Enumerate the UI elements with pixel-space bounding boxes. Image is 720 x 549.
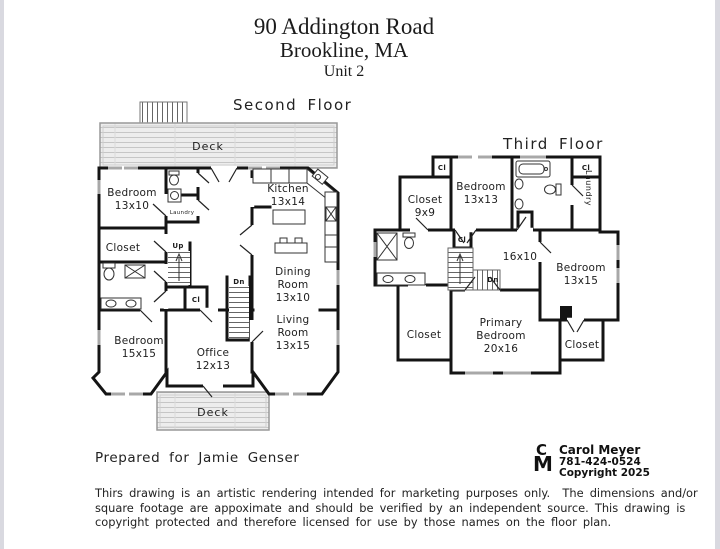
disclaimer-line1: Thirs drawing is an artistic rendering i…	[95, 486, 655, 501]
dining-dims: 13x10	[276, 292, 310, 304]
kitchen-dims: 13x14	[271, 196, 305, 208]
tf-doors	[416, 185, 584, 332]
page-edge-left	[0, 0, 4, 549]
logo-text-block: Carol Meyer 781-424-0524 Copyright 2025	[559, 445, 650, 480]
title-block: 90 Addington Road Brookline, MA Unit 2	[0, 14, 688, 81]
address-line: 90 Addington Road	[0, 14, 688, 39]
cl-hall-label: Cl	[458, 236, 466, 244]
tf-dn-label: Dn	[487, 276, 498, 284]
primary-line2: Bedroom	[476, 330, 526, 342]
primary-line1: Primary	[480, 317, 523, 329]
dining-line2: Room	[277, 279, 308, 291]
closet-left-label: Closet	[407, 329, 442, 341]
disclaimer-text: Thirs drawing is an artistic rendering i…	[95, 486, 655, 530]
bedroom13-dims: 13x13	[464, 194, 498, 206]
dn-label: Dn	[233, 278, 244, 286]
disclaimer-line2: square footage are appoximate and should…	[95, 501, 655, 516]
cl-top-left-label: Cl	[438, 164, 446, 172]
bedroom15-dims: 13x15	[564, 275, 598, 287]
city-line: Brookline, MA	[0, 39, 688, 62]
bedroom1-dims: 13x10	[115, 200, 149, 212]
deck-bottom-label: Deck	[197, 406, 229, 419]
bedroom2-name: Bedroom	[114, 335, 164, 347]
living-dims: 13x15	[276, 340, 310, 352]
office-name: Office	[197, 347, 230, 359]
hall-dims: 16x10	[503, 251, 537, 263]
office-dims: 12x13	[196, 360, 230, 372]
kitchen-name: Kitchen	[267, 183, 309, 195]
prepared-for-text: Prepared for Jamie Genser	[95, 450, 300, 466]
floor-plan-document: { "header": { "line1": "90 Addington Roa…	[0, 0, 720, 549]
bedroom13-name: Bedroom	[456, 181, 506, 193]
dining-line1: Dining	[275, 266, 311, 278]
primary-dims: 20x16	[484, 343, 518, 355]
living-line1: Living	[276, 314, 309, 326]
closet-right-label: Closet	[565, 339, 600, 351]
third-floor-plan: Cl Cl Cl Laundry Closet 9x9 Bedroom 13x1…	[370, 130, 640, 385]
laundry-label: Laundry	[170, 210, 195, 216]
page-edge-right	[715, 0, 720, 549]
laundry-vertical-label: Laundry	[584, 170, 593, 206]
cm-monogram: C M	[533, 443, 557, 474]
tf-room-labels: Cl Cl Cl Laundry Closet 9x9 Bedroom 13x1…	[407, 164, 606, 355]
disclaimer-line3: copyright protected and therefore licens…	[95, 515, 655, 530]
bedroom15-name: Bedroom	[556, 262, 606, 274]
closet9-dims: 9x9	[415, 207, 435, 219]
bedroom1-name: Bedroom	[107, 187, 157, 199]
bedroom2-dims: 15x15	[122, 348, 156, 360]
monogram-letter-m: M	[533, 454, 557, 474]
closet-label: Closet	[106, 242, 141, 254]
logo-copyright: Copyright 2025	[559, 468, 650, 480]
up-label: Up	[172, 242, 183, 250]
second-floor-plan: Deck Deck Bedroom 13x10 Closet Laundry U…	[85, 95, 360, 440]
unit-line: Unit 2	[0, 62, 688, 81]
closet9-name: Closet	[408, 194, 443, 206]
deck-top-label: Deck	[192, 140, 224, 153]
cl-label: Cl	[192, 296, 200, 304]
living-line2: Room	[277, 327, 308, 339]
logo-name: Carol Meyer	[559, 445, 650, 457]
